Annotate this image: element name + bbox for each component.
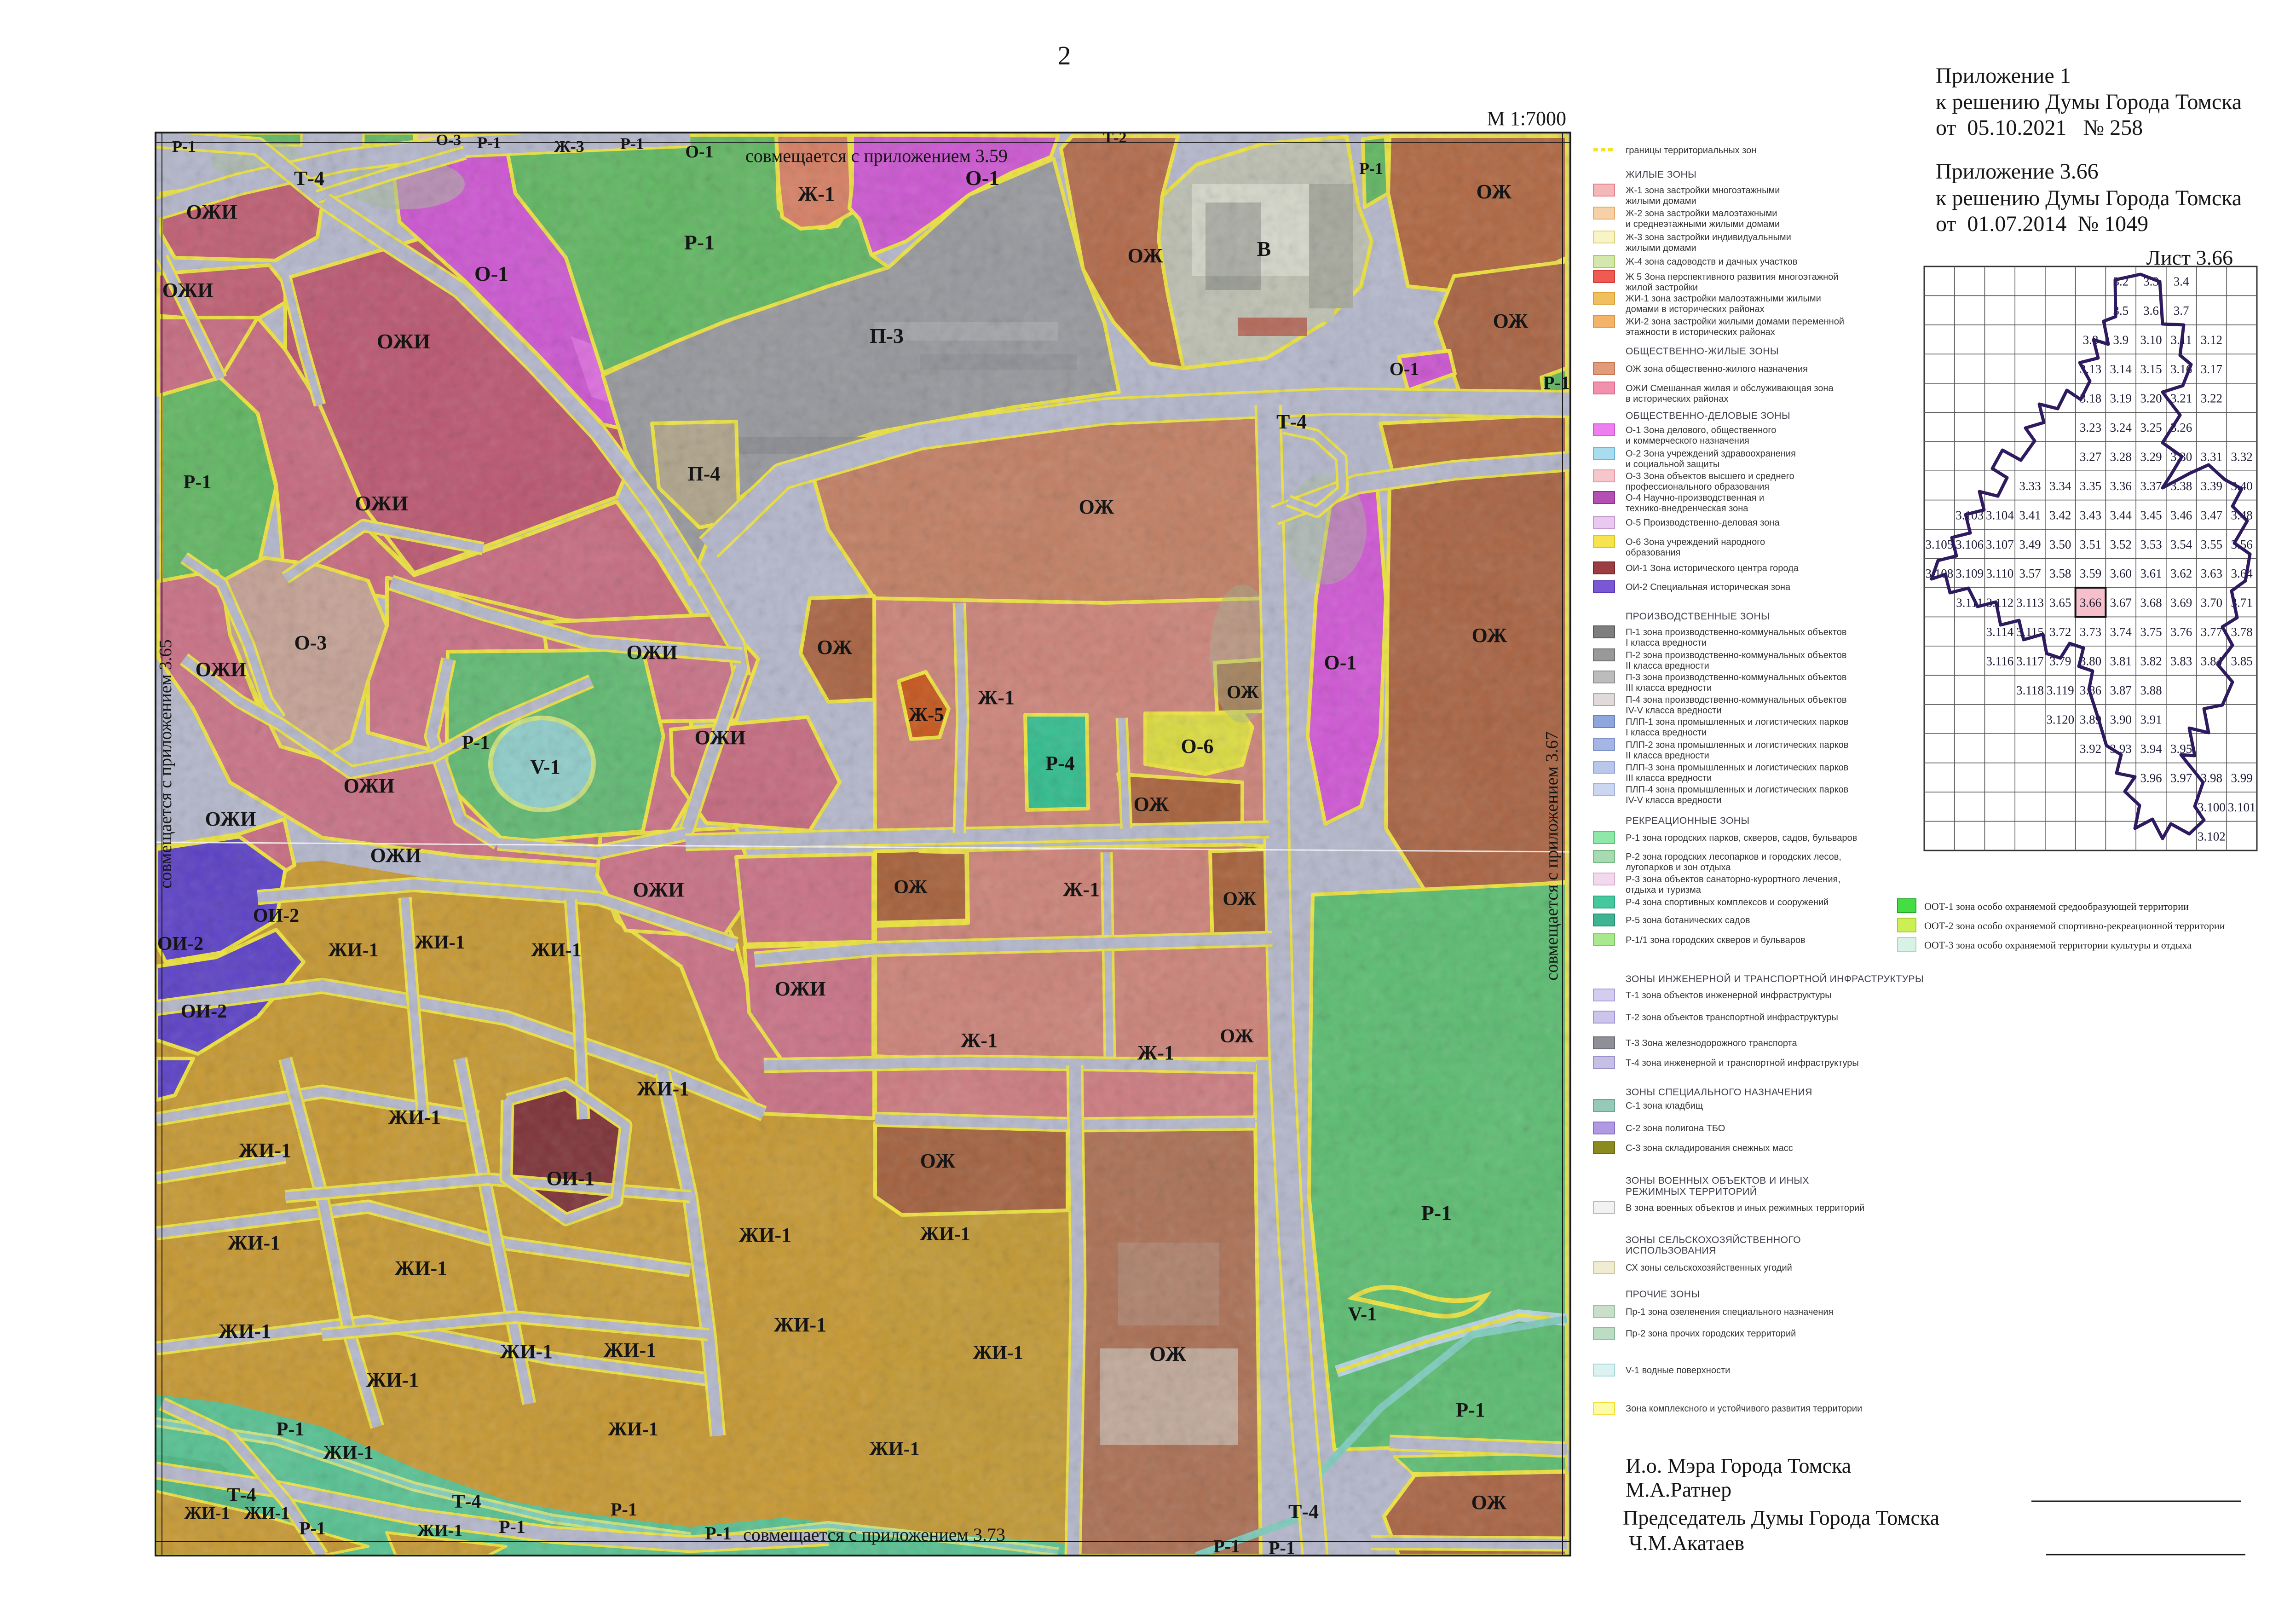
svg-text:ОЖ: ОЖ	[1227, 682, 1259, 702]
svg-text:Ж-3: Ж-3	[554, 137, 584, 156]
svg-text:ОЖИ: ОЖИ	[196, 658, 247, 681]
svg-text:РЕЖИМНЫХ ТЕРРИТОРИЙ: РЕЖИМНЫХ ТЕРРИТОРИЙ	[1626, 1186, 1757, 1197]
svg-text:ОБЩЕСТВЕННО-ДЕЛОВЫЕ ЗОНЫ: ОБЩЕСТВЕННО-ДЕЛОВЫЕ ЗОНЫ	[1626, 411, 1790, 421]
svg-text:3.22: 3.22	[2201, 392, 2222, 405]
svg-text:жилой застройки: жилой застройки	[1626, 283, 1698, 293]
svg-text:3.41: 3.41	[2019, 508, 2041, 522]
svg-text:ЖИ-1: ЖИ-1	[973, 1342, 1023, 1364]
svg-text:ОЖ: ОЖ	[1493, 310, 1529, 332]
svg-text:О-2 Зона учреждений здравоохра: О-2 Зона учреждений здравоохранения	[1626, 449, 1796, 459]
svg-text:Ж-1: Ж-1	[978, 686, 1015, 709]
svg-text:ЖИ-1: ЖИ-1	[328, 940, 378, 961]
svg-text:ЖИ-1: ЖИ-1	[323, 1442, 373, 1463]
svg-text:3.90: 3.90	[2110, 712, 2132, 726]
svg-text:3.46: 3.46	[2170, 508, 2192, 522]
svg-text:3.96: 3.96	[2140, 771, 2162, 785]
svg-text:V-1: V-1	[530, 756, 560, 778]
svg-text:3.68: 3.68	[2140, 596, 2162, 610]
svg-text:Р-1: Р-1	[1421, 1201, 1452, 1225]
svg-text:3.92: 3.92	[2080, 742, 2101, 756]
svg-text:ОЖ: ОЖ	[1128, 244, 1163, 267]
svg-text:3.15: 3.15	[2140, 362, 2162, 376]
svg-text:С-3 зона складирования снежных: С-3 зона складирования снежных масс	[1626, 1143, 1793, 1153]
svg-text:3.73: 3.73	[2080, 625, 2101, 639]
svg-text:3.31: 3.31	[2201, 450, 2222, 463]
svg-text:I класса вредности: I класса вредности	[1626, 638, 1707, 648]
svg-text:IV-V класса вредности: IV-V класса вредности	[1626, 795, 1721, 805]
svg-text:П-1 зона производственно-комму: П-1 зона производственно-коммунальных об…	[1626, 627, 1847, 637]
svg-text:О-1: О-1	[1390, 359, 1419, 379]
svg-text:ЖИ-1: ЖИ-1	[604, 1339, 656, 1361]
svg-text:Т-2 зона объектов транспортной: Т-2 зона объектов транспортной инфрастру…	[1626, 1012, 1838, 1023]
svg-text:3.4: 3.4	[2174, 275, 2189, 289]
svg-text:ОЖИ: ОЖИ	[377, 330, 430, 353]
svg-text:3.51: 3.51	[2080, 538, 2101, 551]
svg-text:И.о. Мэра Города Томска: И.о. Мэра Города Томска	[1626, 1454, 1851, 1477]
svg-text:Р-1: Р-1	[184, 472, 212, 493]
svg-text:ЖИ-1: ЖИ-1	[239, 1139, 291, 1162]
svg-text:3.59: 3.59	[2080, 567, 2101, 580]
svg-text:П-3: П-3	[870, 324, 904, 347]
svg-text:Р-1: Р-1	[611, 1499, 637, 1520]
svg-text:и социальной защиты: и социальной защиты	[1626, 459, 1719, 469]
svg-text:3.105: 3.105	[1925, 538, 1953, 551]
svg-text:3.64: 3.64	[2231, 567, 2253, 580]
svg-text:Приложение 1: Приложение 1	[1936, 64, 2071, 88]
svg-text:3.44: 3.44	[2110, 508, 2132, 522]
svg-text:отдыха и туризма: отдыха и туризма	[1626, 885, 1702, 895]
svg-text:3.43: 3.43	[2080, 508, 2101, 522]
svg-text:ОЖИ: ОЖИ	[627, 641, 678, 664]
svg-text:3.34: 3.34	[2049, 479, 2071, 493]
svg-text:и коммерческого назначения: и коммерческого назначения	[1626, 436, 1749, 446]
svg-text:3.6: 3.6	[2143, 304, 2159, 318]
svg-text:О-1: О-1	[965, 166, 999, 190]
svg-text:3.63: 3.63	[2201, 567, 2222, 580]
svg-text:ЗОНЫ ИНЖЕНЕРНОЙ И ТРАНСПОРТНОЙ: ЗОНЫ ИНЖЕНЕРНОЙ И ТРАНСПОРТНОЙ ИНФРАСТРУ…	[1626, 973, 1924, 984]
svg-text:3.29: 3.29	[2140, 450, 2162, 463]
svg-text:ЖИ-1: ЖИ-1	[500, 1340, 553, 1363]
svg-text:3.78: 3.78	[2231, 625, 2253, 639]
svg-text:О-6: О-6	[1181, 735, 1214, 758]
svg-text:3.101: 3.101	[2228, 800, 2256, 814]
svg-text:3.19: 3.19	[2110, 392, 2132, 405]
svg-text:ОИ-2: ОИ-2	[181, 1001, 227, 1022]
svg-text:3.9: 3.9	[2113, 333, 2129, 347]
svg-text:от 01.07.2014 № 1049: от 01.07.2014 № 1049	[1936, 212, 2148, 236]
svg-text:3.109: 3.109	[1956, 567, 1984, 580]
svg-text:О-6 Зона учреждений народного: О-6 Зона учреждений народного	[1626, 537, 1765, 547]
svg-text:Р-1: Р-1	[705, 1523, 732, 1544]
svg-text:О-4 Научно-производственная и: О-4 Научно-производственная и	[1626, 493, 1764, 503]
svg-text:ОЖИ: ОЖИ	[162, 279, 213, 301]
svg-text:3.97: 3.97	[2170, 771, 2192, 785]
svg-text:ОЖ: ОЖ	[1220, 1026, 1254, 1047]
svg-text:3.37: 3.37	[2140, 479, 2162, 493]
svg-text:ПРОИЗВОДСТВЕННЫЕ ЗОНЫ: ПРОИЗВОДСТВЕННЫЕ ЗОНЫ	[1626, 611, 1770, 622]
svg-text:ООТ-2 зона особо охраняемой сп: ООТ-2 зона особо охраняемой спортивно-ре…	[1924, 920, 2225, 931]
svg-text:О-1: О-1	[474, 262, 508, 285]
svg-text:границы территориальных зон: границы территориальных зон	[1626, 145, 1756, 156]
svg-text:Р-1: Р-1	[684, 231, 715, 254]
svg-text:ООТ-3 зона особо охраняемой те: ООТ-3 зона особо охраняемой территории к…	[1924, 939, 2192, 951]
svg-text:II класса вредности: II класса вредности	[1626, 751, 1709, 761]
svg-text:Пр-2 зона прочих городских тер: Пр-2 зона прочих городских территорий	[1626, 1329, 1796, 1339]
svg-text:ЗОНЫ СПЕЦИАЛЬНОГО НАЗНАЧЕНИЯ: ЗОНЫ СПЕЦИАЛЬНОГО НАЗНАЧЕНИЯ	[1626, 1087, 1812, 1098]
svg-text:ОИ-1: ОИ-1	[546, 1167, 594, 1190]
svg-text:Р-1: Р-1	[1456, 1399, 1485, 1421]
svg-text:3.72: 3.72	[2049, 625, 2071, 639]
svg-text:Пр-1 зона озеленения специальн: Пр-1 зона озеленения специального назнач…	[1626, 1307, 1833, 1317]
svg-text:3.82: 3.82	[2140, 654, 2162, 668]
svg-text:3.118: 3.118	[2016, 683, 2044, 697]
svg-text:V-1 водные поверхности: V-1 водные поверхности	[1626, 1365, 1730, 1376]
svg-text:ЖИ-1: ЖИ-1	[415, 932, 465, 953]
svg-text:ПЛП-2 зона промышленных и логи: ПЛП-2 зона промышленных и логистических …	[1626, 740, 1848, 750]
svg-text:ПЛП-1 зона промышленных и логи: ПЛП-1 зона промышленных и логистических …	[1626, 717, 1848, 727]
svg-text:III класса вредности: III класса вредности	[1626, 773, 1712, 783]
svg-text:П-3 зона производственно-комму: П-3 зона производственно-коммунальных об…	[1626, 672, 1847, 683]
svg-text:ОЖ: ОЖ	[920, 1150, 956, 1172]
svg-text:3.85: 3.85	[2231, 654, 2253, 668]
svg-text:3.114: 3.114	[1986, 625, 2013, 639]
svg-text:Ж-1: Ж-1	[1137, 1041, 1174, 1064]
svg-text:3.83: 3.83	[2170, 654, 2192, 668]
svg-text:ОИ-2: ОИ-2	[253, 905, 299, 926]
svg-text:Лист 3.66: Лист 3.66	[2146, 246, 2233, 269]
svg-text:3.27: 3.27	[2080, 450, 2101, 463]
svg-text:3.17: 3.17	[2201, 362, 2222, 376]
svg-text:3.47: 3.47	[2201, 508, 2222, 522]
svg-text:ЖИ-1 зона застройки малоэтажны: ЖИ-1 зона застройки малоэтажными жилыми	[1626, 294, 1821, 304]
svg-text:3.50: 3.50	[2049, 538, 2071, 551]
svg-text:О-1: О-1	[1324, 651, 1357, 674]
svg-text:ОЖ: ОЖ	[1477, 180, 1512, 203]
svg-text:Р-1: Р-1	[1359, 159, 1383, 178]
svg-text:ПЛП-4 зона промышленных и логи: ПЛП-4 зона промышленных и логистических …	[1626, 785, 1848, 795]
svg-text:I класса вредности: I класса вредности	[1626, 728, 1707, 738]
svg-text:Т-1 зона объектов инженерной и: Т-1 зона объектов инженерной инфраструкт…	[1626, 990, 1832, 1001]
svg-text:Р-1: Р-1	[172, 137, 196, 156]
svg-text:ООТ-1 зона особо охраняемой ср: ООТ-1 зона особо охраняемой средообразую…	[1924, 901, 2189, 912]
svg-text:совмещается с приложением 3.59: совмещается с приложением 3.59	[745, 145, 1008, 166]
svg-text:ПЛП-3 зона промышленных и логи: ПЛП-3 зона промышленных и логистических …	[1626, 763, 1848, 773]
svg-text:П-2 зона производственно-комму: П-2 зона производственно-коммунальных об…	[1626, 650, 1847, 660]
svg-text:3.106: 3.106	[1956, 538, 1984, 551]
svg-text:ЖИ-1: ЖИ-1	[531, 940, 581, 961]
svg-text:лугопарков и зон отдыха: лугопарков и зон отдыха	[1626, 862, 1731, 873]
svg-text:Т-4 зона инженерной и транспор: Т-4 зона инженерной и транспортной инфра…	[1626, 1058, 1859, 1068]
svg-text:ЖИ-1: ЖИ-1	[774, 1313, 826, 1336]
svg-text:3.35: 3.35	[2080, 479, 2101, 493]
svg-text:3.21: 3.21	[2170, 392, 2192, 405]
svg-text:ОЖ: ОЖ	[1472, 624, 1507, 647]
svg-text:3.116: 3.116	[1986, 654, 2013, 668]
svg-text:3.39: 3.39	[2201, 479, 2222, 493]
svg-text:ЖИ-1: ЖИ-1	[244, 1504, 290, 1523]
svg-text:II класса вредности: II класса вредности	[1626, 661, 1709, 671]
svg-text:3.88: 3.88	[2140, 683, 2162, 697]
svg-text:3.42: 3.42	[2049, 508, 2071, 522]
svg-text:Р-1: Р-1	[620, 134, 644, 153]
svg-text:Ч.М.Акатаев: Ч.М.Акатаев	[1629, 1531, 1744, 1555]
svg-text:III класса вредности: III класса вредности	[1626, 683, 1712, 693]
svg-text:ОЖ: ОЖ	[1079, 496, 1114, 518]
svg-text:Р-1: Р-1	[499, 1516, 525, 1537]
svg-text:ЖИ-1: ЖИ-1	[366, 1369, 419, 1391]
svg-text:ЖИ-1: ЖИ-1	[228, 1232, 280, 1254]
svg-text:3.67: 3.67	[2110, 596, 2132, 610]
svg-text:В: В	[1257, 237, 1271, 260]
svg-text:3.54: 3.54	[2170, 538, 2192, 551]
svg-text:Р-1: Р-1	[299, 1518, 326, 1539]
svg-text:3.23: 3.23	[2080, 421, 2101, 434]
svg-text:ЖИ-1: ЖИ-1	[637, 1077, 689, 1100]
svg-text:ЖИ-1: ЖИ-1	[388, 1106, 441, 1128]
svg-text:ОЖИ: ОЖИ	[205, 808, 256, 830]
svg-text:3.102: 3.102	[2198, 829, 2226, 843]
svg-text:3.36: 3.36	[2110, 479, 2132, 493]
svg-text:ОИ-2: ОИ-2	[157, 933, 203, 954]
svg-text:3.110: 3.110	[1986, 567, 2013, 580]
svg-text:в исторических районах: в исторических районах	[1626, 394, 1728, 404]
svg-text:3.25: 3.25	[2140, 421, 2162, 434]
svg-text:Р-1: Р-1	[277, 1419, 305, 1440]
svg-text:Р-4: Р-4	[1045, 752, 1075, 775]
svg-text:3.100: 3.100	[2198, 800, 2226, 814]
svg-text:Р-1: Р-1	[462, 732, 490, 753]
svg-text:Ж-4 зона садоводств и дачных у: Ж-4 зона садоводств и дачных участков	[1626, 257, 1798, 267]
svg-text:Р-2 зона городских лесопарков: Р-2 зона городских лесопарков и городски…	[1626, 852, 1841, 862]
svg-text:О-1 Зона делового, общественно: О-1 Зона делового, общественного	[1626, 425, 1776, 435]
svg-text:Ж-5: Ж-5	[909, 705, 944, 726]
svg-text:ОЖ: ОЖ	[817, 636, 853, 659]
svg-text:Ж-1: Ж-1	[1063, 878, 1100, 901]
svg-text:3.32: 3.32	[2231, 450, 2253, 463]
svg-text:3.55: 3.55	[2201, 538, 2222, 551]
svg-text:ЖИ-1: ЖИ-1	[185, 1504, 230, 1523]
svg-text:Т-4: Т-4	[294, 167, 324, 190]
svg-text:домами в исторических районах: домами в исторических районах	[1626, 304, 1765, 314]
svg-text:3.14: 3.14	[2110, 362, 2132, 376]
svg-text:В зона военных объектов и иных: В зона военных объектов и иных режимных …	[1626, 1203, 1864, 1213]
svg-text:Р-5 зона ботанических садов: Р-5 зона ботанических садов	[1626, 915, 1750, 925]
svg-text:ОЖ: ОЖ	[1223, 889, 1257, 910]
svg-text:Ж-3 зона застройки индивидуаль: Ж-3 зона застройки индивидуальными	[1626, 232, 1791, 243]
svg-text:3.91: 3.91	[2140, 712, 2162, 726]
svg-text:3.60: 3.60	[2110, 567, 2132, 580]
svg-text:3.76: 3.76	[2170, 625, 2192, 639]
svg-text:3.57: 3.57	[2019, 567, 2041, 580]
svg-text:ОЖИ Смешанная жилая и обслужив: ОЖИ Смешанная жилая и обслуживающая зона	[1626, 383, 1834, 393]
svg-text:ОЖ: ОЖ	[894, 877, 928, 898]
svg-text:3.20: 3.20	[2140, 392, 2162, 405]
svg-text:ЖИ-1: ЖИ-1	[869, 1439, 919, 1460]
svg-text:Р-4 зона спортивных комплексов: Р-4 зона спортивных комплексов и сооруже…	[1626, 897, 1829, 908]
svg-text:3.24: 3.24	[2110, 421, 2132, 434]
svg-text:3.119: 3.119	[2047, 683, 2074, 697]
svg-text:ОЖИ: ОЖИ	[344, 775, 395, 797]
svg-text:3.87: 3.87	[2110, 683, 2132, 697]
svg-text:ОЖИ: ОЖИ	[775, 978, 826, 1000]
svg-text:3.108: 3.108	[1925, 567, 1953, 580]
svg-text:П-4: П-4	[688, 463, 721, 485]
svg-text:3.45: 3.45	[2140, 508, 2162, 522]
svg-text:О-5 Производственно-деловая зо: О-5 Производственно-деловая зона	[1626, 518, 1780, 528]
svg-text:ОБЩЕСТВЕННО-ЖИЛЫЕ ЗОНЫ: ОБЩЕСТВЕННО-ЖИЛЫЕ ЗОНЫ	[1626, 346, 1779, 357]
svg-text:Т-3 Зона железнодорожного тран: Т-3 Зона железнодорожного транспорта	[1626, 1038, 1797, 1048]
svg-text:ОЖИ: ОЖИ	[355, 492, 408, 515]
svg-text:3.113: 3.113	[2016, 596, 2044, 610]
svg-text:ИСПОЛЬЗОВАНИЯ: ИСПОЛЬЗОВАНИЯ	[1626, 1245, 1716, 1256]
svg-text:3.69: 3.69	[2170, 596, 2192, 610]
svg-text:Зона комплексного и устойчивог: Зона комплексного и устойчивого развития…	[1626, 1404, 1862, 1414]
svg-text:Ж-1: Ж-1	[961, 1029, 998, 1052]
svg-text:ОЖИ: ОЖИ	[370, 844, 421, 867]
svg-text:РЕКРЕАЦИОННЫЕ ЗОНЫ: РЕКРЕАЦИОННЫЕ ЗОНЫ	[1626, 816, 1750, 826]
svg-text:Т-4: Т-4	[1276, 411, 1307, 433]
svg-text:Приложение 3.66: Приложение 3.66	[1936, 159, 2099, 184]
svg-text:С-2 зона полигона ТБО: С-2 зона полигона ТБО	[1626, 1123, 1725, 1134]
svg-text:ОЖ: ОЖ	[1471, 1491, 1507, 1514]
svg-text:О-3: О-3	[294, 631, 327, 654]
svg-text:ЖИ-1: ЖИ-1	[608, 1419, 658, 1440]
svg-text:Ж 5 Зона перспективного развит: Ж 5 Зона перспективного развития многоэт…	[1626, 272, 1838, 282]
svg-text:ОИ-1 Зона исторического центра: ОИ-1 Зона исторического центра города	[1626, 563, 1799, 573]
svg-text:этажности в исторических район: этажности в исторических районах	[1626, 327, 1775, 337]
svg-text:3.75: 3.75	[2140, 625, 2162, 639]
svg-text:3.52: 3.52	[2110, 538, 2132, 551]
svg-text:3.120: 3.120	[2046, 712, 2074, 726]
svg-text:жилыми домами: жилыми домами	[1626, 243, 1696, 253]
svg-text:ЖИ-1: ЖИ-1	[920, 1224, 970, 1245]
svg-text:Председатель Думы Города Томск: Председатель Думы Города Томска	[1623, 1506, 1939, 1529]
svg-text:совмещается с приложением 3.67: совмещается с приложением 3.67	[1542, 731, 1562, 980]
svg-text:к решению Думы Города Томска: к решению Думы Города Томска	[1936, 90, 2242, 114]
svg-text:3.58: 3.58	[2049, 567, 2071, 580]
svg-text:3.81: 3.81	[2110, 654, 2132, 668]
svg-text:Т-4: Т-4	[1288, 1500, 1319, 1523]
svg-text:ЗОНЫ ВОЕННЫХ ОБЪЕКТОВ И ИНЫХ: ЗОНЫ ВОЕННЫХ ОБЪЕКТОВ И ИНЫХ	[1626, 1175, 1809, 1186]
svg-text:к решению Думы Города Томска: к решению Думы Города Томска	[1936, 186, 2242, 210]
svg-text:3.65: 3.65	[2049, 596, 2071, 610]
svg-text:М 1:7000: М 1:7000	[1487, 107, 1566, 130]
svg-text:3.94: 3.94	[2140, 742, 2162, 756]
svg-text:ЖИ-1: ЖИ-1	[417, 1521, 463, 1540]
svg-text:ПРОЧИЕ ЗОНЫ: ПРОЧИЕ ЗОНЫ	[1626, 1289, 1700, 1300]
svg-text:ОЖИ: ОЖИ	[633, 879, 684, 901]
svg-text:совмещается с приложением 3.65: совмещается с приложением 3.65	[156, 639, 175, 888]
svg-text:ОИ-2 Специальная историческая: ОИ-2 Специальная историческая зона	[1626, 582, 1791, 592]
svg-text:Р-1: Р-1	[1543, 372, 1570, 393]
svg-text:О-3: О-3	[436, 132, 462, 149]
svg-text:технико-внедренческая зона: технико-внедренческая зона	[1626, 503, 1748, 514]
svg-text:Р-1/1 зона городских скверов и: Р-1/1 зона городских скверов и бульваров	[1626, 935, 1806, 945]
svg-text:жилыми домами: жилыми домами	[1626, 196, 1696, 206]
svg-text:3.99: 3.99	[2231, 771, 2253, 785]
svg-text:Т-4: Т-4	[227, 1485, 256, 1506]
svg-text:ЗОНЫ СЕЛЬСКОХОЗЯЙСТВЕННОГО: ЗОНЫ СЕЛЬСКОХОЗЯЙСТВЕННОГО	[1626, 1234, 1801, 1245]
svg-text:Ж-1 зона застройки многоэтажны: Ж-1 зона застройки многоэтажными	[1626, 185, 1780, 196]
svg-text:Р-3 зона объектов санаторно-ку: Р-3 зона объектов санаторно-курортного л…	[1626, 874, 1840, 885]
svg-text:М.А.Ратнер: М.А.Ратнер	[1626, 1478, 1731, 1501]
svg-text:ЖИ-1: ЖИ-1	[395, 1257, 447, 1279]
svg-text:С-1 зона кладбищ: С-1 зона кладбищ	[1626, 1101, 1703, 1111]
svg-text:IV-V класса вредности: IV-V класса вредности	[1626, 706, 1721, 716]
svg-text:О-1: О-1	[685, 142, 713, 162]
svg-text:и среднеэтажными жилыми домами: и среднеэтажными жилыми домами	[1626, 219, 1780, 229]
svg-text:ОЖИ: ОЖИ	[695, 726, 746, 749]
svg-text:3.70: 3.70	[2201, 596, 2222, 610]
svg-text:профессионального образования: профессионального образования	[1626, 482, 1769, 492]
svg-text:Р-1 зона городских парков, скв: Р-1 зона городских парков, скверов, садо…	[1626, 833, 1857, 843]
svg-text:3.107: 3.107	[1986, 538, 2014, 551]
svg-text:3.53: 3.53	[2140, 538, 2162, 551]
svg-text:П-4 зона производственно-комму: П-4 зона производственно-коммунальных об…	[1626, 695, 1847, 705]
svg-text:Ж-2 зона застройки малоэтажным: Ж-2 зона застройки малоэтажными	[1626, 208, 1777, 219]
svg-text:ЖИЛЫЕ ЗОНЫ: ЖИЛЫЕ ЗОНЫ	[1626, 169, 1696, 180]
svg-text:Т-4: Т-4	[452, 1491, 481, 1512]
svg-text:3.49: 3.49	[2019, 538, 2041, 551]
svg-text:V-1: V-1	[1348, 1304, 1377, 1325]
svg-text:ЖИ-2 зона застройки жилыми дом: ЖИ-2 зона застройки жилыми домами переме…	[1626, 317, 1844, 327]
svg-text:СХ зоны сельскохозяйственных у: СХ зоны сельскохозяйственных угодий	[1626, 1263, 1792, 1273]
svg-text:3.74: 3.74	[2110, 625, 2132, 639]
svg-text:2: 2	[1058, 40, 1071, 70]
svg-text:от 05.10.2021 № 258: от 05.10.2021 № 258	[1936, 116, 2143, 140]
svg-text:ОЖИ: ОЖИ	[186, 201, 237, 223]
svg-text:3.33: 3.33	[2019, 479, 2041, 493]
svg-text:3.66: 3.66	[2080, 596, 2101, 610]
svg-text:ЖИ-1: ЖИ-1	[219, 1320, 271, 1342]
svg-text:ОЖ: ОЖ	[1149, 1342, 1187, 1365]
svg-text:ОЖ зона общественно-жилого наз: ОЖ зона общественно-жилого назначения	[1626, 364, 1808, 374]
svg-text:ОЖ: ОЖ	[1134, 793, 1169, 816]
svg-text:3.62: 3.62	[2170, 567, 2192, 580]
svg-text:3.117: 3.117	[2016, 654, 2044, 668]
svg-text:образования: образования	[1626, 548, 1680, 558]
svg-text:3.12: 3.12	[2201, 333, 2222, 347]
svg-text:3.61: 3.61	[2140, 567, 2162, 580]
svg-text:3.7: 3.7	[2174, 304, 2189, 318]
svg-text:3.77: 3.77	[2201, 625, 2222, 639]
svg-text:Ж-1: Ж-1	[798, 183, 835, 205]
svg-text:Р-1: Р-1	[1213, 1536, 1240, 1556]
svg-text:О-3 Зона объектов высшего и ср: О-3 Зона объектов высшего и среднего	[1626, 471, 1794, 481]
svg-text:3.28: 3.28	[2110, 450, 2132, 463]
svg-text:3.104: 3.104	[1986, 508, 2014, 522]
svg-text:3.10: 3.10	[2140, 333, 2162, 347]
svg-text:ЖИ-1: ЖИ-1	[739, 1224, 791, 1246]
